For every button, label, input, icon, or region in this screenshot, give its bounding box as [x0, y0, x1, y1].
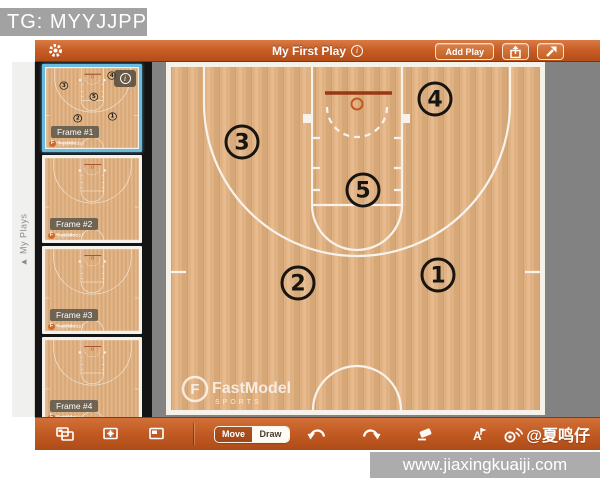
- weibo-watermark: @夏鸣仔: [503, 422, 590, 446]
- url-watermark-banner: www.jiaxingkuaiji.com: [370, 452, 600, 478]
- weibo-handle: @夏鸣仔: [526, 422, 590, 446]
- toolbar-separator: [193, 423, 194, 445]
- fastmodel-mini-logo: FFastModel: [48, 232, 83, 239]
- draw-mode-button[interactable]: Draw: [252, 427, 289, 442]
- frame-thumbnail[interactable]: 12345 Frame #1 FFastModel i: [42, 64, 142, 152]
- settings-gear-icon[interactable]: [46, 42, 64, 60]
- player-number: 3: [62, 83, 66, 89]
- player-number: 2: [290, 272, 305, 297]
- redo-icon[interactable]: [359, 422, 383, 446]
- player-number: 1: [430, 264, 445, 289]
- weibo-icon: [503, 426, 523, 443]
- title-info-icon[interactable]: i: [351, 45, 363, 57]
- frame-thumbnail[interactable]: Frame #2 FFastModel: [42, 155, 142, 243]
- frame-thumbnail[interactable]: Frame #4 FFastModel: [42, 337, 142, 417]
- text-tool-icon[interactable]: A: [467, 422, 491, 446]
- court[interactable]: 12345: [166, 62, 545, 415]
- frame-label: Frame #4: [50, 400, 98, 412]
- frame-label: Frame #2: [50, 218, 98, 230]
- mode-segmented-control: Move Draw: [214, 426, 290, 443]
- undo-icon[interactable]: [305, 422, 329, 446]
- frame-label: Frame #1: [51, 126, 99, 138]
- copy-frame-icon[interactable]: [145, 422, 169, 446]
- my-plays-label: ▲ My Plays: [18, 213, 28, 266]
- fastmodel-mini-icon: F: [48, 232, 55, 239]
- fastmodel-mini-icon: F: [48, 323, 55, 330]
- player-number: 1: [111, 114, 115, 120]
- frames-overview-icon[interactable]: [53, 422, 77, 446]
- page-title: My First Play: [272, 44, 346, 58]
- player-number: 2: [76, 116, 80, 122]
- bottom-toolbar: Move Draw: [35, 417, 600, 450]
- top-bar: My First Play i Add Play: [35, 40, 600, 62]
- tg-watermark-banner: TG: MYYJJPP: [0, 8, 147, 36]
- info-icon: i: [120, 73, 131, 84]
- frame-thumbnail[interactable]: Frame #3 FFastModel: [42, 246, 142, 334]
- player-number: 3: [234, 131, 249, 156]
- frames-panel: 12345 Frame #1 FFastModel i Frame #2 FFa…: [35, 62, 152, 417]
- share-icon: [509, 45, 522, 59]
- share-button[interactable]: [502, 43, 529, 60]
- fullscreen-button[interactable]: [537, 43, 564, 60]
- eraser-icon[interactable]: [413, 422, 437, 446]
- fastmodel-mini-icon: F: [49, 140, 56, 147]
- my-plays-collapse-strip[interactable]: ▲ My Plays: [12, 62, 35, 417]
- add-frame-icon[interactable]: [99, 422, 123, 446]
- player-number: 5: [355, 179, 370, 204]
- player-number: 4: [427, 88, 442, 113]
- add-play-button[interactable]: Add Play: [435, 43, 494, 60]
- move-mode-button[interactable]: Move: [215, 427, 252, 442]
- frame-label: Frame #3: [50, 309, 98, 321]
- fastmodel-mini-logo: FFastModel: [49, 140, 84, 147]
- court-canvas[interactable]: 12345: [152, 62, 600, 417]
- frame-info-button[interactable]: i: [114, 70, 136, 87]
- fastmodel-mini-logo: FFastModel: [48, 323, 83, 330]
- expand-arrow-icon: [544, 45, 558, 59]
- player-number: 5: [92, 94, 96, 100]
- page: My First Play i Add Play ▲ My Plays: [0, 0, 600, 480]
